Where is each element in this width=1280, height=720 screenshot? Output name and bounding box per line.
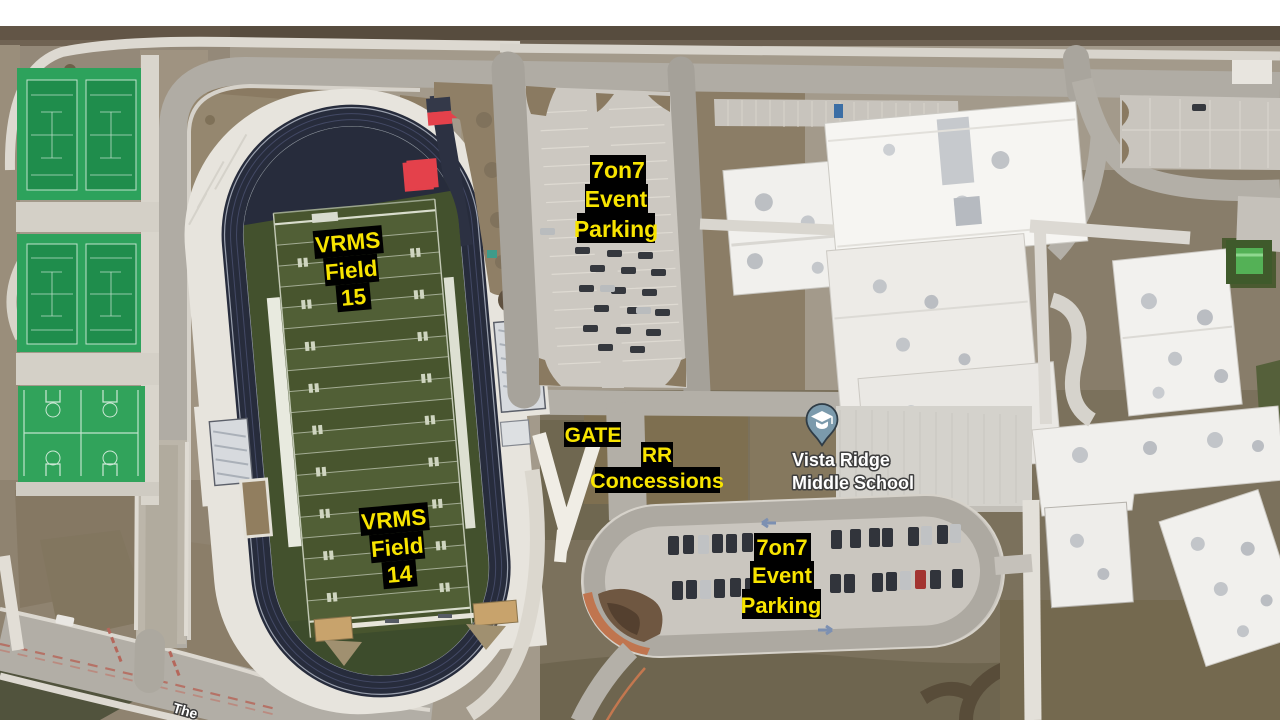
svg-text:RR: RR: [642, 444, 672, 467]
svg-text:Concessions: Concessions: [590, 469, 724, 493]
svg-text:Event: Event: [585, 186, 648, 212]
svg-text:7on7: 7on7: [591, 157, 645, 183]
svg-text:Event: Event: [752, 563, 813, 588]
svg-text:Parking: Parking: [741, 593, 822, 618]
svg-text:Field: Field: [370, 533, 424, 562]
svg-text:Middle School: Middle School: [792, 473, 914, 493]
svg-text:14: 14: [386, 561, 414, 588]
svg-text:Vista Ridge: Vista Ridge: [792, 450, 890, 470]
svg-text:7on7: 7on7: [756, 535, 807, 560]
svg-text:Parking: Parking: [574, 216, 658, 242]
svg-text:15: 15: [340, 284, 367, 311]
svg-text:GATE: GATE: [565, 424, 622, 447]
svg-text:Field: Field: [324, 256, 378, 285]
